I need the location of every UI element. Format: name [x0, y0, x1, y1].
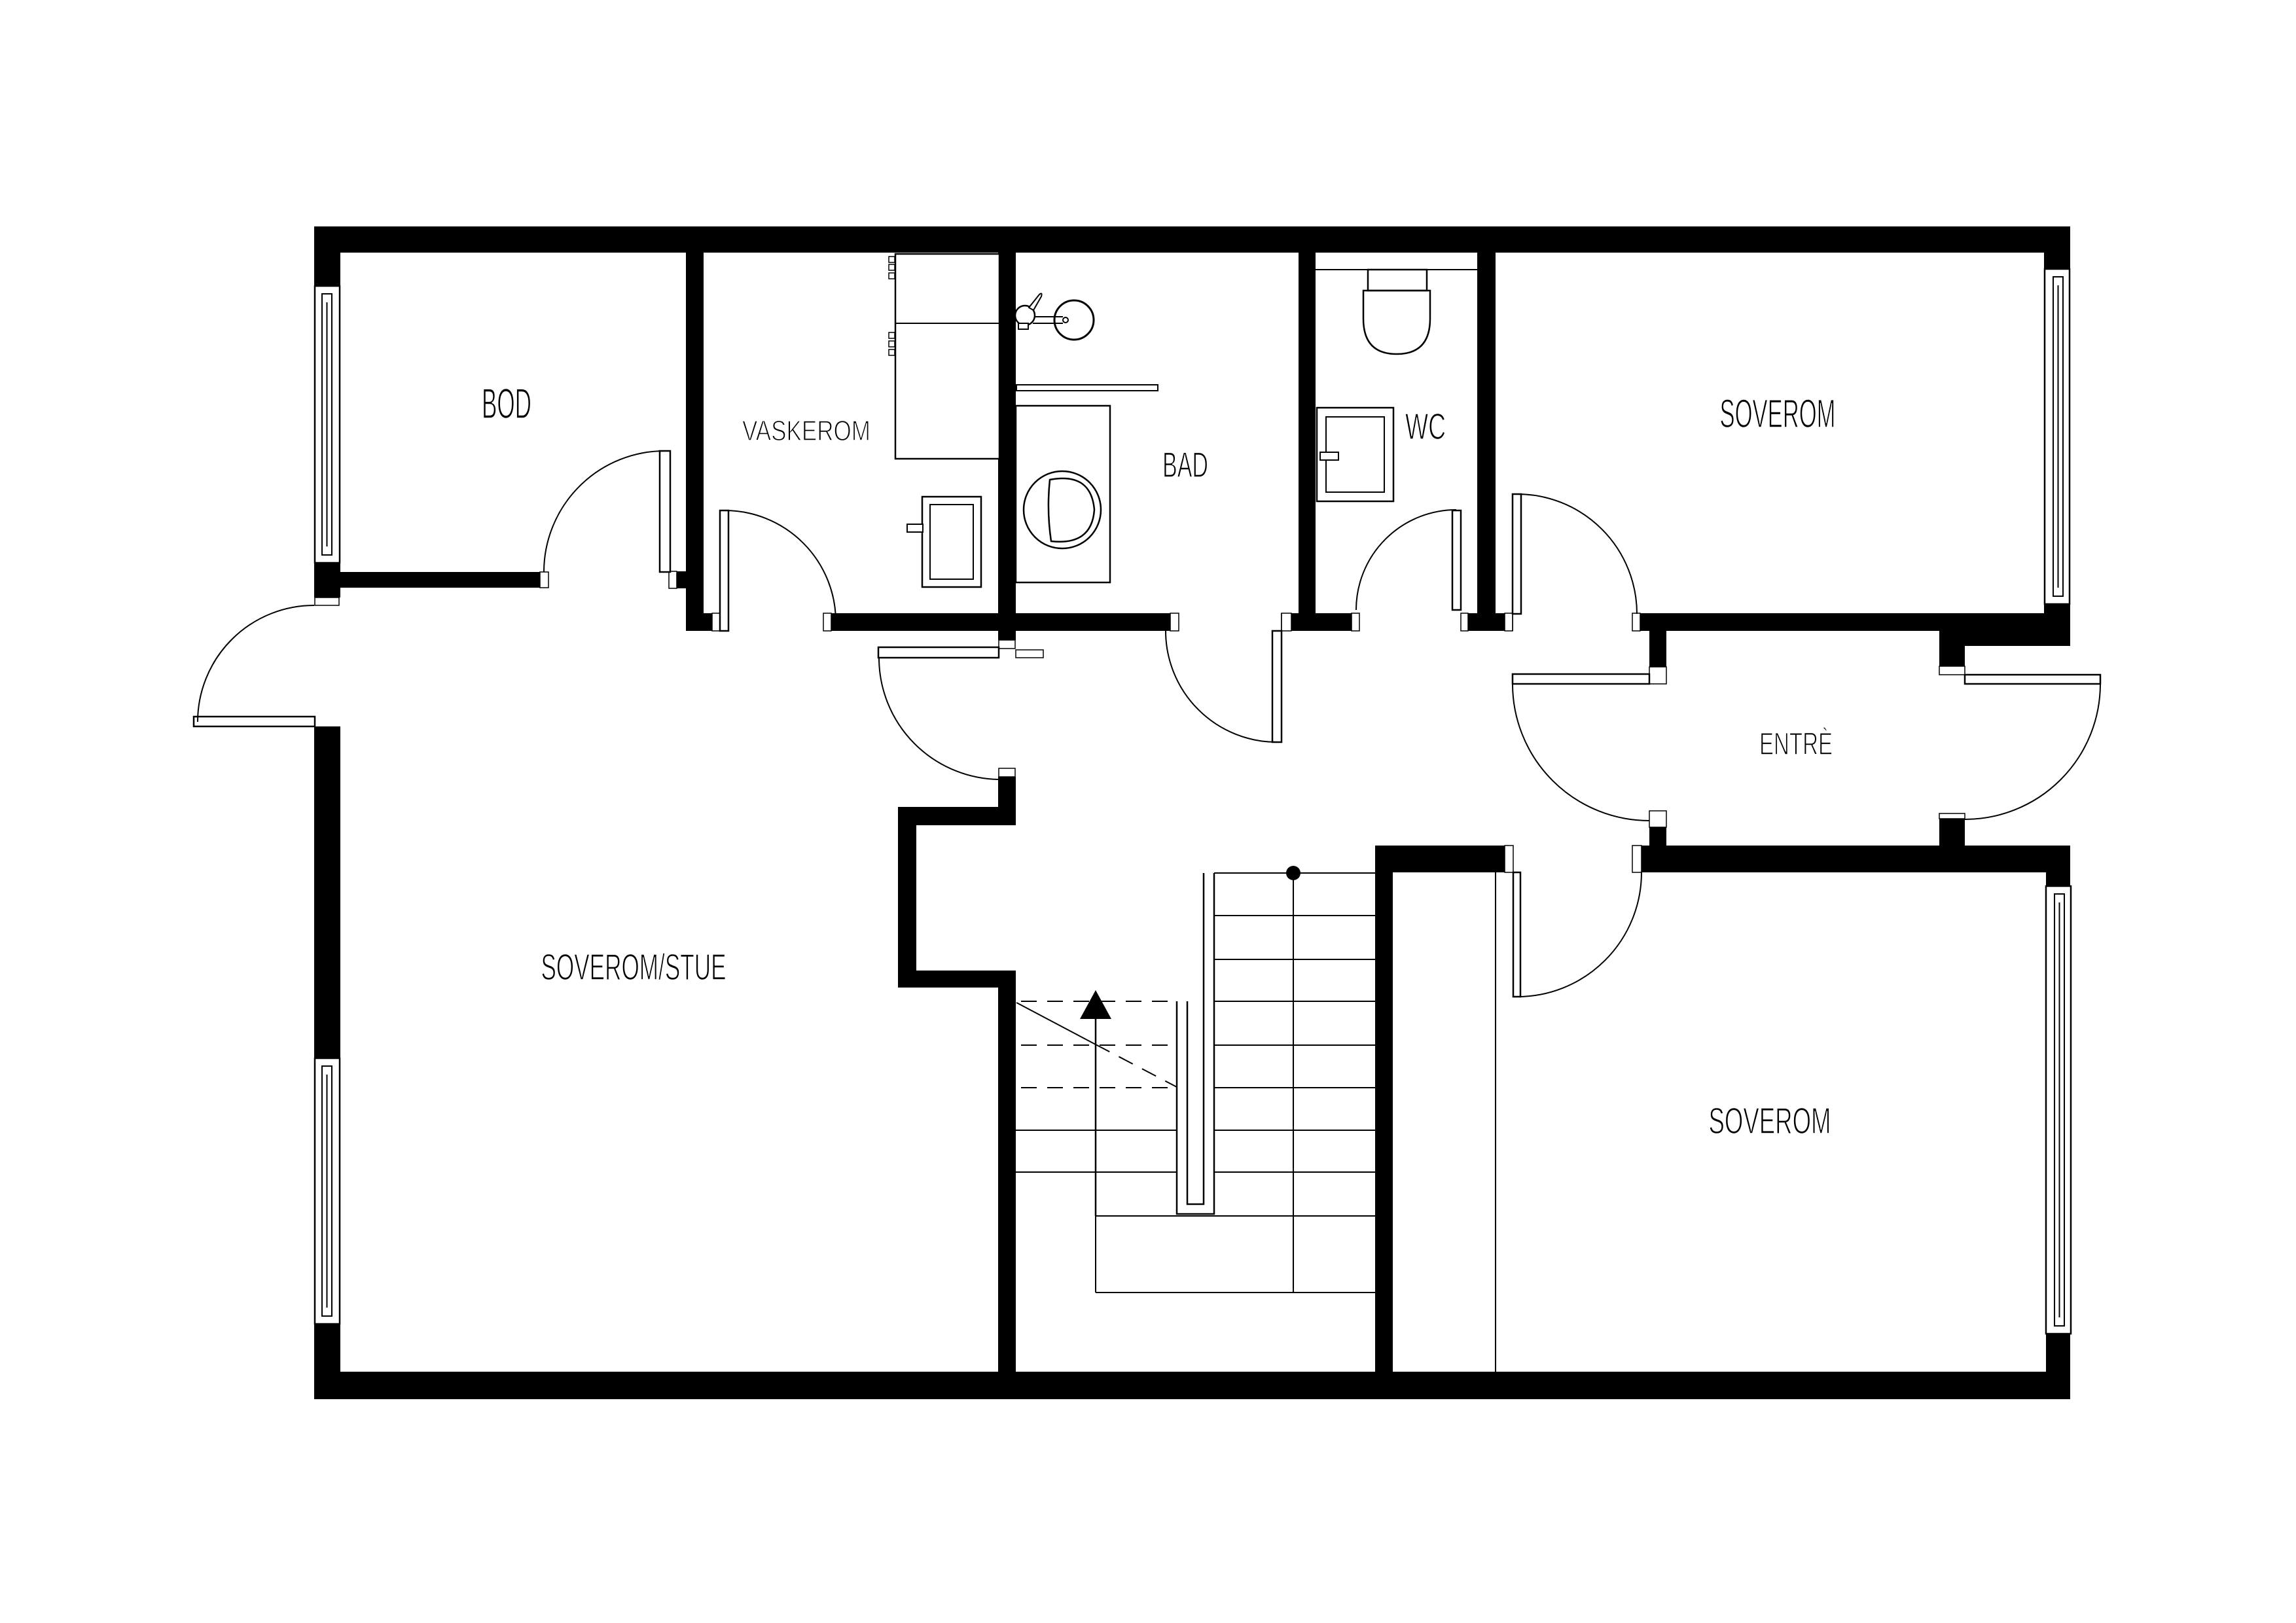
svg-text:WC: WC	[1405, 406, 1446, 448]
svg-text:SOVEROM/STUE: SOVEROM/STUE	[541, 946, 726, 988]
svg-text:SOVEROM: SOVEROM	[1709, 1100, 1831, 1142]
svg-text:ENTRÈ: ENTRÈ	[1759, 727, 1833, 762]
svg-text:BOD: BOD	[482, 380, 531, 427]
svg-text:VASKEROM: VASKEROM	[742, 415, 870, 447]
svg-text:BAD: BAD	[1162, 444, 1208, 485]
svg-text:SOVEROM: SOVEROM	[1720, 391, 1836, 436]
